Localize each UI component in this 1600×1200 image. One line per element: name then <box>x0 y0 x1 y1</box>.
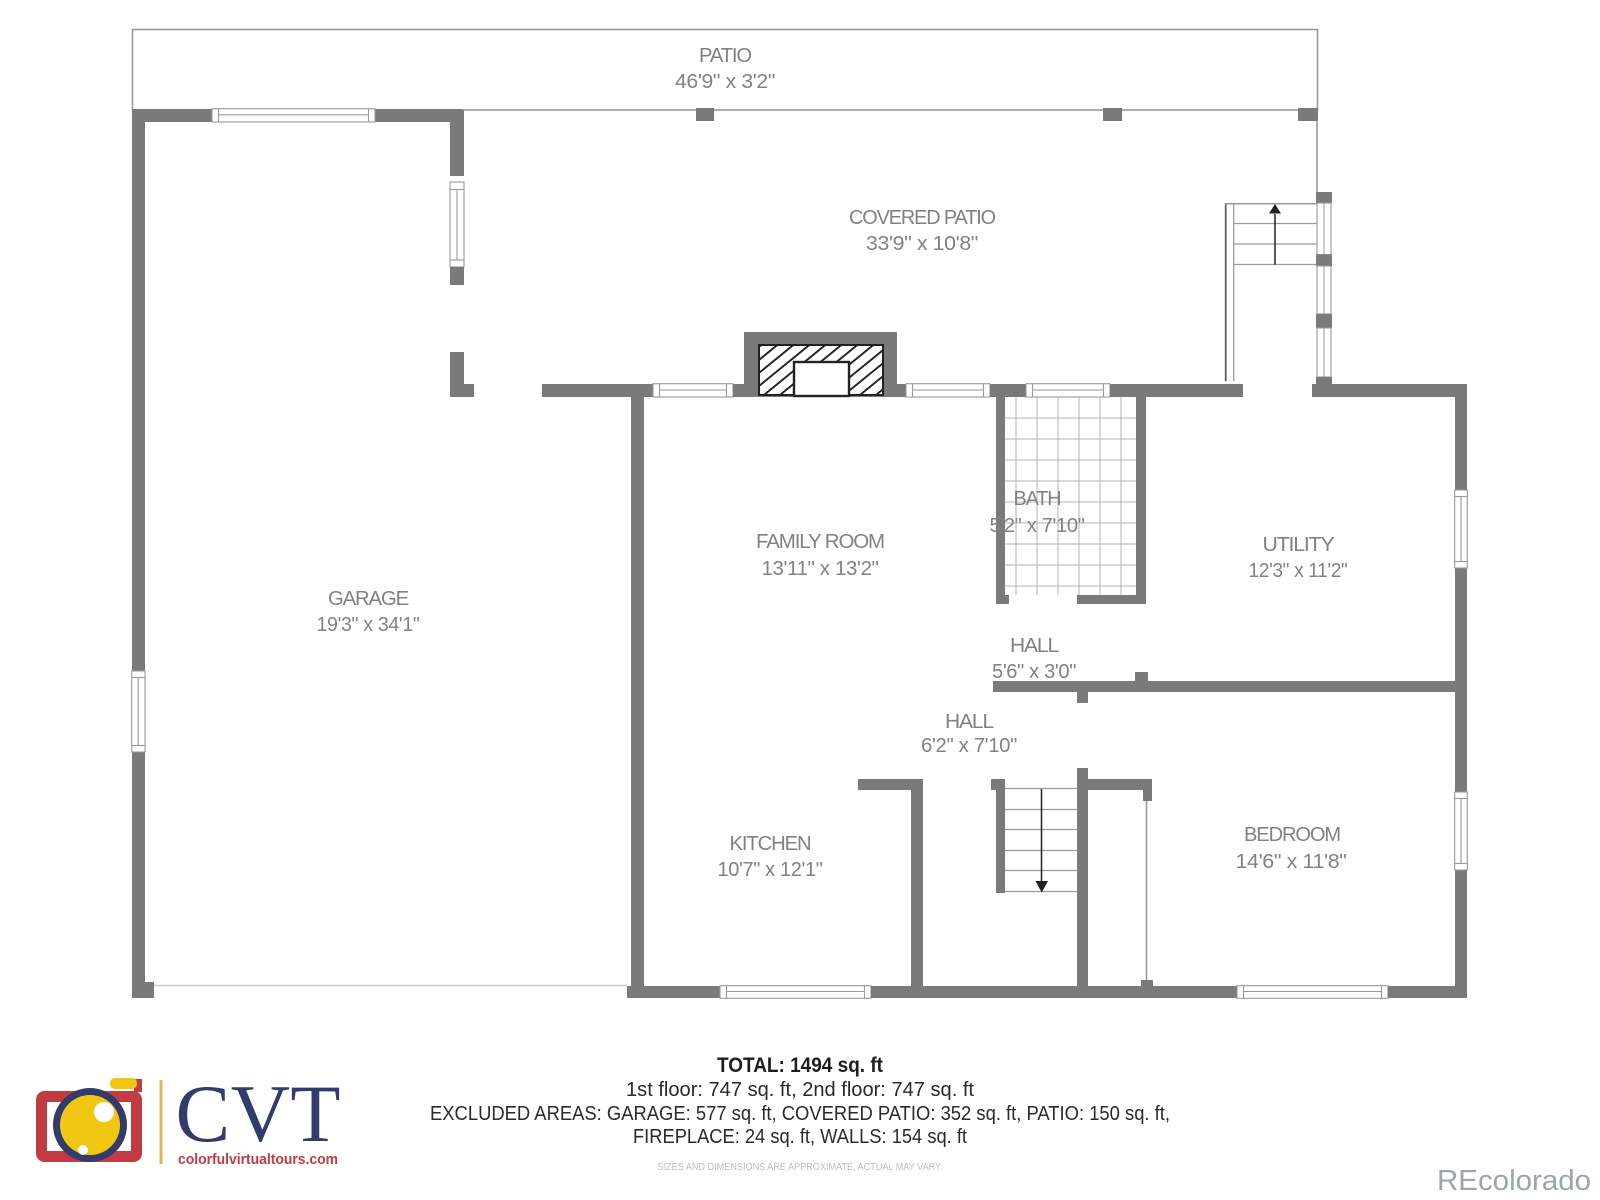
svg-text:CVT: CVT <box>176 1068 341 1159</box>
svg-text:19'3" x 34'1": 19'3" x 34'1" <box>317 614 420 636</box>
svg-text:HALL: HALL <box>1010 635 1059 657</box>
svg-text:FIREPLACE: 24 sq. ft, WALLS: 1: FIREPLACE: 24 sq. ft, WALLS: 154 sq. ft <box>633 1126 967 1148</box>
svg-text:BATH: BATH <box>1014 488 1061 510</box>
svg-text:12'3" x 11'2": 12'3" x 11'2" <box>1249 560 1348 582</box>
svg-text:6'2" x 7'10": 6'2" x 7'10" <box>921 735 1017 757</box>
svg-text:EXCLUDED AREAS: GARAGE: 577 sq: EXCLUDED AREAS: GARAGE: 577 sq. ft, COVE… <box>430 1103 1170 1125</box>
svg-text:KITCHEN: KITCHEN <box>730 833 811 855</box>
svg-text:33'9" x 10'8": 33'9" x 10'8" <box>866 233 978 255</box>
svg-text:10'7" x 12'1": 10'7" x 12'1" <box>718 859 823 881</box>
svg-text:14'6" x 11'8": 14'6" x 11'8" <box>1236 851 1347 873</box>
svg-text:UTILITY: UTILITY <box>1263 534 1335 556</box>
svg-text:PATIO: PATIO <box>699 45 752 67</box>
svg-text:BEDROOM: BEDROOM <box>1244 824 1340 846</box>
svg-text:HALL: HALL <box>945 711 994 733</box>
svg-text:GARAGE: GARAGE <box>328 588 409 610</box>
svg-text:5'6" x 3'0": 5'6" x 3'0" <box>992 661 1076 683</box>
svg-text:REcolorado: REcolorado <box>1437 1165 1591 1197</box>
svg-text:SIZES AND DIMENSIONS ARE APPRO: SIZES AND DIMENSIONS ARE APPROXIMATE, AC… <box>658 1162 943 1173</box>
svg-text:1st floor: 747 sq. ft, 2nd flo: 1st floor: 747 sq. ft, 2nd floor: 747 sq… <box>626 1079 974 1101</box>
svg-text:FAMILY ROOM: FAMILY ROOM <box>756 531 884 553</box>
svg-text:46'9" x 3'2": 46'9" x 3'2" <box>675 71 775 93</box>
svg-text:5'2" x 7'10": 5'2" x 7'10" <box>990 515 1085 537</box>
svg-text:COVERED PATIO: COVERED PATIO <box>849 207 996 229</box>
svg-text:13'11" x 13'2": 13'11" x 13'2" <box>762 558 879 580</box>
svg-text:TOTAL: 1494 sq. ft: TOTAL: 1494 sq. ft <box>717 1054 883 1077</box>
svg-text:colorfulvirtualtours.com: colorfulvirtualtours.com <box>178 1152 338 1168</box>
